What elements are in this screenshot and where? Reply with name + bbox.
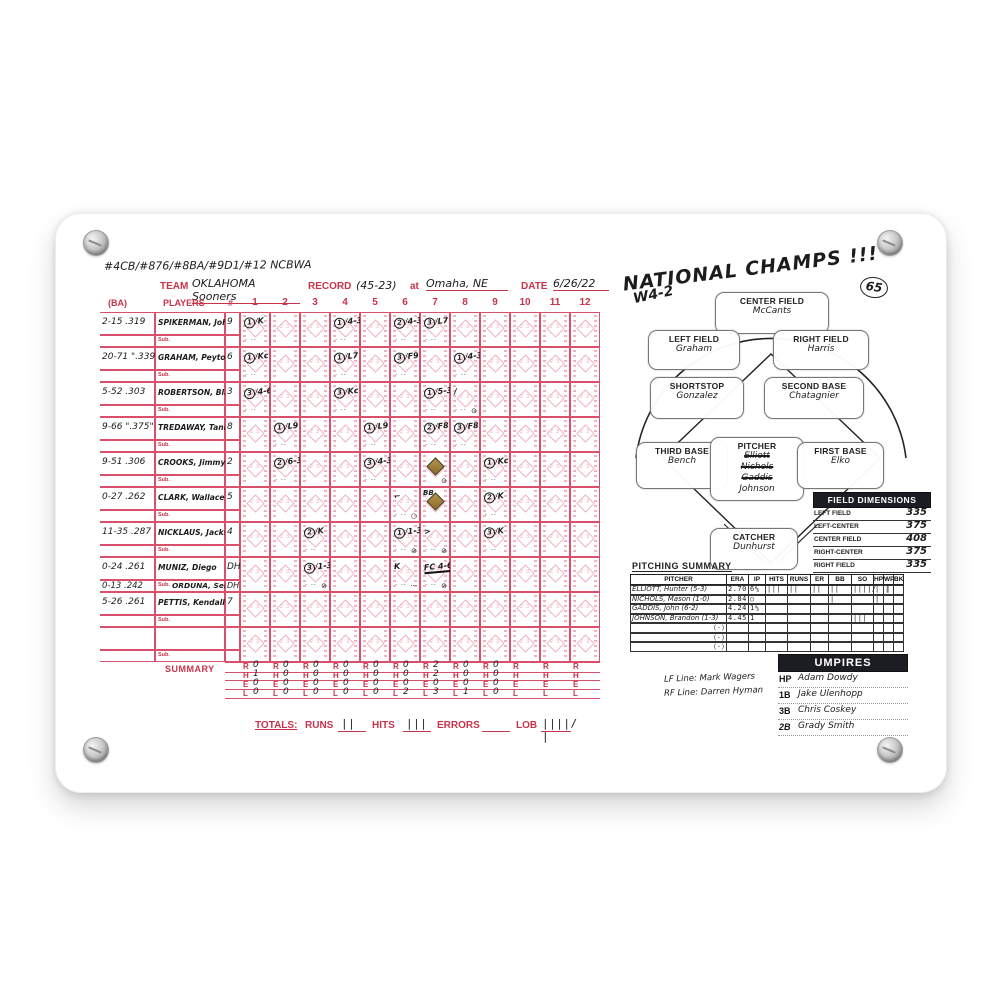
player-ba-cell: 5-52 .303 <box>100 382 155 405</box>
printed-positions: 2 3 <box>460 499 470 505</box>
pitch-dots-strip-right <box>534 630 537 659</box>
pitch-dots-strip-left <box>243 560 246 589</box>
player-ba-sub-cell <box>100 370 155 382</box>
scoring-cell: 2 33/Kc· ·· <box>330 382 360 417</box>
scoring-cell: 2 3 <box>300 382 330 417</box>
pitch-dots-strip-left <box>453 455 456 484</box>
pitch-dots-strip-right <box>564 490 567 519</box>
scoring-cell: 2 3 <box>390 592 420 627</box>
pitch-dots-strip-left <box>513 350 516 379</box>
inning-header: 7 <box>420 297 450 308</box>
scoring-cell: 2 3 <box>270 557 300 592</box>
location-value: Omaha, NE <box>426 277 508 291</box>
cell-extra-mark: ⊘ <box>441 547 447 555</box>
scoring-cell: 2 3 <box>570 557 600 592</box>
pitch-dots-strip-right <box>354 560 357 589</box>
pitch-dots-strip-right <box>354 595 357 624</box>
printed-positions: 2 3 <box>250 499 260 505</box>
field-dimensions-table: FIELD DIMENSIONSLEFT FIELD335LEFT-CENTER… <box>813 492 931 573</box>
play-text: FC 4-6 <box>424 561 453 572</box>
pitch-dots-strip-right <box>294 595 297 624</box>
pitch-dots-strip-left <box>453 630 456 659</box>
pitching-header-cell: ERA <box>726 574 749 585</box>
pitch-dots-strip-right <box>324 420 327 449</box>
summary-value: 0 <box>283 687 289 697</box>
pitch-dots-strip-right <box>504 630 507 659</box>
player-ba-sub-cell: 0-13 .242 <box>100 580 155 592</box>
summary-letter: R <box>423 662 429 671</box>
player-ba-cell: 2-15 .319 <box>100 312 155 335</box>
pitch-count-dots: · ·· <box>425 407 437 414</box>
scoring-cell: 2 3 <box>420 592 450 627</box>
pitching-header-cell: ER <box>810 574 829 585</box>
pitcher-name: NICHOLS, Mason (1-0) <box>632 595 710 603</box>
summary-letter: E <box>303 680 308 689</box>
summary-letter: L <box>273 689 278 698</box>
scoring-cell: 2 3 <box>330 417 360 452</box>
cell-play-line: 1/K <box>244 316 265 329</box>
scoring-cell: 2 3/· ··⊙ <box>450 382 480 417</box>
scoring-cell: 2 3 <box>540 382 570 417</box>
cell-annotation: 3/F8· ·· <box>451 418 479 451</box>
summary-value: 3 <box>433 687 439 697</box>
player-pos-cell: DH <box>225 557 240 580</box>
pitch-dots-strip-left <box>543 385 546 414</box>
errors-underline <box>482 720 510 732</box>
printed-positions: 2 3 <box>490 359 500 365</box>
cell-extra-mark: ⊘ <box>321 582 327 590</box>
pitching-cell-hits <box>765 633 788 643</box>
inning-header: 11 <box>540 297 570 308</box>
errors-label: ERRORS <box>437 720 480 731</box>
printed-positions: 2 3 <box>520 604 530 610</box>
pitch-dots-strip-left <box>543 490 546 519</box>
player-sub-cell: Sub. <box>155 405 225 417</box>
record-label: RECORD <box>308 281 351 292</box>
pitch-count-dots: · ·· <box>395 512 407 519</box>
umpire-row: HPAdam Dowdy <box>778 672 908 688</box>
printed-positions: 2 3 <box>250 569 260 575</box>
player-sub-cell: Sub. <box>155 370 225 382</box>
field-dimension-row: RIGHT FIELD335 <box>813 560 931 573</box>
summary-letter: L <box>513 689 518 698</box>
pitch-dots-strip-right <box>354 525 357 554</box>
pitch-dots-strip-right <box>504 420 507 449</box>
pitching-header-cell: HITS <box>765 574 788 585</box>
pitching-cell-so <box>851 595 874 605</box>
lob-tally: ||||/ | <box>542 717 578 743</box>
player-ba-cell: 9-51 .306 <box>100 452 155 475</box>
summary-letter: R <box>483 662 489 671</box>
pitching-value: | <box>830 595 835 603</box>
pitch-dots-strip-left <box>543 455 546 484</box>
scoring-cell: 2 3 <box>480 592 510 627</box>
scoring-cell: 2 3 <box>570 347 600 382</box>
cell-annotation: >· ··⊘ <box>421 523 449 556</box>
player-name-cell: MUNIZ, Diego <box>155 557 225 580</box>
summary-letter: H <box>393 671 399 680</box>
scoring-cell: 2 32/K· ·· <box>300 522 330 557</box>
player-pos-cell: 9 <box>225 312 240 335</box>
play-text: L7 <box>347 351 358 361</box>
player-sub-cell: Sub. <box>155 440 225 452</box>
pitching-value: | <box>875 595 880 603</box>
printed-positions: 2 3 <box>460 604 470 610</box>
summary-letter: R <box>513 662 519 671</box>
printed-positions: 2 3 <box>280 534 290 540</box>
pitch-dots-strip-right <box>324 630 327 659</box>
scoring-cell: 2 3 <box>360 522 390 557</box>
sub-label: Sub. <box>158 512 170 518</box>
pitch-dots-strip-right <box>354 630 357 659</box>
sub-ba-value: 0-13 .242 <box>102 581 143 591</box>
pitch-count-dots: · ·· <box>485 512 497 519</box>
summary-letter: E <box>423 680 428 689</box>
printed-positions: 2 3 <box>340 604 350 610</box>
record-value: (45-23) <box>356 279 397 292</box>
pitching-cell-hits: ||| <box>765 585 788 595</box>
printed-positions: 2 3 <box>370 394 380 400</box>
scoring-cell: 2 3 <box>480 312 510 347</box>
pitch-dots-strip-left <box>333 630 336 659</box>
pitching-cell-bk <box>893 585 904 595</box>
printed-positions: 2 3 <box>370 324 380 330</box>
printed-positions: 2 3 <box>460 569 470 575</box>
player-pos-cell: 8 <box>225 417 240 440</box>
player-name-cell: GRAHAM, Peyton <box>155 347 225 370</box>
pitch-dots-strip-left <box>513 455 516 484</box>
cell-extra-mark: ⊙ <box>471 407 477 415</box>
cell-play-line: 3/Kc <box>334 386 360 399</box>
cell-play-line: / <box>454 387 458 396</box>
player-ba-cell: 9-66 ".375" <box>100 417 155 440</box>
pitch-dots-strip-left <box>423 350 426 379</box>
scoring-cell: 2 3 <box>570 627 600 662</box>
pitch-dots-strip-right <box>594 490 597 519</box>
pitch-dots-strip-left <box>333 525 336 554</box>
summary-letter: R <box>333 662 339 671</box>
pitch-dots-strip-left <box>513 525 516 554</box>
scoring-cell: 2 3 <box>390 417 420 452</box>
player-name-cell: SPIKERMAN, John <box>155 312 225 335</box>
cell-annotation: 2/K· ·· <box>481 488 509 521</box>
sub-label: Sub. <box>158 407 170 413</box>
cell-play-line: K <box>394 562 401 572</box>
pitching-cell-er <box>810 614 829 624</box>
umpire-pos-label: 2B <box>779 722 791 732</box>
pitching-cell-bb <box>828 604 852 614</box>
cell-annotation: ⌐· ··○ <box>391 488 419 521</box>
scoring-cell: 2 31/L7· ·· <box>330 347 360 382</box>
pitch-dots-strip-left <box>363 525 366 554</box>
cell-play-line: 2/4-3 <box>394 316 423 329</box>
scoring-cell: 2 3 <box>570 522 600 557</box>
summary-letter: H <box>573 671 579 680</box>
cell-play-line: 1/4-3 <box>334 316 363 329</box>
position-label: SHORTSTOP <box>651 378 743 391</box>
scoring-cell: 2 3 <box>300 452 330 487</box>
scoring-cell: 2 31/L9· ·· <box>270 417 300 452</box>
pitch-dots-strip-right <box>534 420 537 449</box>
summary-letter: E <box>243 680 248 689</box>
printed-positions: 2 3 <box>340 429 350 435</box>
player-pos-value: 2 <box>227 457 233 467</box>
printed-positions: 2 3 <box>400 604 410 610</box>
summary-letter: E <box>273 680 278 689</box>
scoring-cell: 2 3 <box>570 487 600 522</box>
pitch-dots-strip-right <box>294 315 297 344</box>
scoring-cell: 2 31/L9· ·· <box>360 417 390 452</box>
pitching-cell-bb <box>828 614 852 624</box>
printed-positions: 2 3 <box>490 604 500 610</box>
cell-play-line: 1/L9 <box>364 421 389 434</box>
pitch-dots-strip-right <box>414 630 417 659</box>
cell-annotation: 2/6-3· ·· <box>271 453 299 486</box>
pitch-dots-strip-left <box>453 595 456 624</box>
dimension-label: RIGHT FIELD <box>814 562 855 569</box>
pitching-cell-er <box>810 633 829 643</box>
scoring-cell: 2 3 <box>510 417 540 452</box>
player-pos-sub-cell <box>225 475 240 487</box>
pitching-cell-era <box>726 633 749 643</box>
player-name-cell: NICKLAUS, Jackson <box>155 522 225 545</box>
sub-label: Sub. <box>158 442 170 448</box>
player-sub-cell: Sub. <box>155 475 225 487</box>
scoring-cell: 2 3 <box>450 592 480 627</box>
pitching-cell-runs <box>787 642 811 652</box>
printed-positions: 2 3 <box>340 464 350 470</box>
printed-positions: 2 3 <box>490 324 500 330</box>
cell-annotation: BB <box>421 488 449 521</box>
pitch-count-dots: · ·· <box>485 477 497 484</box>
position-box-rf: RIGHT FIELDHarris <box>773 330 869 370</box>
player-pos-sub-cell <box>225 335 240 347</box>
pitch-dots-strip-right <box>504 350 507 379</box>
cell-play-line: 3/K <box>484 526 505 539</box>
pitch-dots-strip-right <box>564 385 567 414</box>
player-ba-value: 11-35 .287 <box>102 527 151 537</box>
scoring-cell: 2 32/F8· ·· <box>420 417 450 452</box>
summary-letter: L <box>573 689 578 698</box>
pitch-dots-strip-right <box>444 350 447 379</box>
scoring-cell: 2 3 <box>300 347 330 382</box>
pitching-cell-so <box>851 623 874 633</box>
pitch-dots-strip-right <box>594 315 597 344</box>
scoring-cell: 2 3 <box>270 382 300 417</box>
player-ba-cell <box>100 627 155 650</box>
pitch-dots-strip-left <box>513 315 516 344</box>
pitch-dots-strip-right <box>474 630 477 659</box>
pitching-value: 4.45 <box>728 614 747 622</box>
player-ba-cell: 0-27 .262 <box>100 487 155 510</box>
scoring-cell: 2 31/4-3· ·· <box>330 312 360 347</box>
pitch-dots-strip-right <box>354 420 357 449</box>
player-name-cell: TREDAWAY, Tanner <box>155 417 225 440</box>
printed-positions: 2 3 <box>280 499 290 505</box>
cell-play-line: 2/F8 <box>424 421 450 434</box>
umpire-pos-label: HP <box>779 674 792 684</box>
scoring-cell: 2 3 <box>360 557 390 592</box>
pitching-value: 1⅓ <box>750 604 759 612</box>
inning-header: 5 <box>360 297 390 308</box>
printed-positions: 2 3 <box>340 534 350 540</box>
pitch-count-dots: · ·· <box>365 442 377 449</box>
player-ba-value: 9-51 .306 <box>102 457 145 467</box>
pitch-dots-strip-left <box>333 490 336 519</box>
umpire-name: Grady Smith <box>798 721 854 731</box>
printed-positions: 2 3 <box>370 569 380 575</box>
printed-positions: 2 3 <box>550 569 560 575</box>
cell-play-line: FC 4-6 <box>424 561 453 574</box>
scoring-cell: 2 3 <box>330 522 360 557</box>
pitching-cell-bk <box>893 623 904 633</box>
sub-label: Sub. <box>158 337 170 343</box>
printed-positions: 2 3 <box>400 464 410 470</box>
pitch-dots-strip-left <box>333 420 336 449</box>
pitching-header-cell: SO <box>851 574 874 585</box>
pitch-dots-strip-right <box>564 525 567 554</box>
scoring-cell: 2 3 <box>300 592 330 627</box>
play-text: L9 <box>287 421 298 431</box>
pitch-dots-strip-right <box>324 315 327 344</box>
pitch-dots-strip-right <box>594 385 597 414</box>
pitch-dots-strip-left <box>513 560 516 589</box>
pitch-dots-strip-left <box>363 350 366 379</box>
cell-play-line: ⌐ <box>394 492 401 502</box>
cell-play-line: 3/1-3 <box>304 561 333 574</box>
cell-play-text: BB <box>423 489 434 497</box>
cell-annotation: 3/Kc· ·· <box>331 383 359 416</box>
pitch-dots-strip-right <box>324 455 327 484</box>
player-ba-cell: 20-71 ".339" <box>100 347 155 370</box>
pitching-cell-bk <box>893 633 904 643</box>
pitch-dots-strip-left <box>303 455 306 484</box>
rankings-note: #4CB/#876/#8BA/#9D1/#12 NCBWA <box>104 258 312 273</box>
pitching-cell-name: ( - ) <box>630 642 727 652</box>
inning-header: 6 <box>390 297 420 308</box>
pitching-value: || <box>789 585 798 593</box>
sub-label: Sub. <box>158 652 170 658</box>
scoring-cell: 2 3 <box>270 627 300 662</box>
player-sub-cell: Sub. <box>155 650 225 662</box>
pitch-dots-strip-left <box>393 385 396 414</box>
scoring-cell: 2 3 <box>540 312 570 347</box>
position-player-name: Dunhurst <box>711 542 797 553</box>
inning-header: 9 <box>480 297 510 308</box>
player-sub-cell: Sub. <box>155 615 225 627</box>
summary-value: 1 <box>463 687 469 697</box>
printed-positions: 2 3 <box>520 359 530 365</box>
play-text: Kc <box>257 351 269 361</box>
printed-positions: 2 3 <box>580 639 590 645</box>
summary-letter: L <box>303 689 308 698</box>
pitching-cell-name: ( - ) <box>630 633 727 643</box>
pitching-cell-er <box>810 623 829 633</box>
dimension-value: 408 <box>906 533 927 544</box>
pitch-dots-strip-right <box>294 630 297 659</box>
pitch-dots-strip-right <box>534 525 537 554</box>
pitch-dots-strip-left <box>273 630 276 659</box>
pitch-count-dots: · ·· <box>245 407 257 414</box>
summary-letter: R <box>453 662 459 671</box>
pitch-dots-strip-left <box>573 490 576 519</box>
position-player-name: Elliott <box>711 451 803 462</box>
player-ba-cell: 11-35 .287 <box>100 522 155 545</box>
pitch-dots-strip-right <box>564 455 567 484</box>
summary-letter: L <box>423 689 428 698</box>
pitch-dots-strip-right <box>504 595 507 624</box>
pitch-dots-strip-right <box>534 490 537 519</box>
player-name-cell: CLARK, Wallace <box>155 487 225 510</box>
cell-play-line: 3/F8 <box>454 421 480 434</box>
summary-letter: L <box>333 689 338 698</box>
pitch-dots-strip-left <box>273 595 276 624</box>
pitch-dots-strip-left <box>333 560 336 589</box>
pitching-cell-runs <box>787 595 811 605</box>
cell-play-line: 1/4-3 <box>454 351 483 364</box>
pitching-cell-ip <box>748 633 766 643</box>
player-ba-sub-cell <box>100 615 155 627</box>
pitching-header-cell: BK <box>893 574 904 585</box>
player-name: CROOKS, Jimmy <box>158 458 225 467</box>
printed-positions: 2 3 <box>370 534 380 540</box>
player-pos-cell: 5 <box>225 487 240 510</box>
dimension-value: 335 <box>906 559 927 570</box>
player-pos-cell: 6 <box>225 347 240 370</box>
pitching-value: ||| <box>767 585 781 593</box>
cell-play-line: 3/4-3 <box>364 456 393 469</box>
scoring-cell: 2 3 <box>240 417 270 452</box>
pitch-dots-strip-right <box>294 385 297 414</box>
dimension-label: LEFT-CENTER <box>814 523 859 530</box>
scoring-cell: 2 33/K· ·· <box>480 522 510 557</box>
pitching-cell-ip <box>748 623 766 633</box>
pitch-dots-strip-right <box>564 630 567 659</box>
printed-positions: 2 3 <box>580 464 590 470</box>
cell-annotation: K· ····· <box>391 558 419 591</box>
printed-positions: 2 3 <box>580 499 590 505</box>
pitching-header-cell: BB <box>828 574 852 585</box>
printed-positions: 2 3 <box>310 394 320 400</box>
scoring-cell: 2 3 <box>360 382 390 417</box>
cell-annotation: 1/Kc· ·· <box>241 348 269 381</box>
summary-letter: R <box>573 662 579 671</box>
scoring-cell: 2 3 <box>510 452 540 487</box>
pitch-dots-strip-left <box>363 385 366 414</box>
pitch-dots-strip-right <box>264 420 267 449</box>
scoring-cell: 2 33/L7· ·· <box>420 312 450 347</box>
printed-positions: 2 3 <box>310 359 320 365</box>
pitch-dots-strip-left <box>573 350 576 379</box>
pitch-dots-strip-right <box>594 420 597 449</box>
scoring-cell: 2 3 <box>270 487 300 522</box>
cell-annotation: 1/L9· ·· <box>361 418 389 451</box>
player-name: PETTIS, Kendall <box>158 598 225 607</box>
pitching-cell-bk <box>893 642 904 652</box>
position-label: LEFT FIELD <box>649 331 739 344</box>
summary-letter: E <box>483 680 488 689</box>
printed-positions: 2 3 <box>280 569 290 575</box>
scoring-cell: 2 31/1-3· ··⊘ <box>390 522 420 557</box>
pitch-count-dots: · ·· <box>305 547 317 554</box>
pitch-dots-strip-left <box>453 490 456 519</box>
pitch-dots-strip-left <box>363 630 366 659</box>
scoring-cell: 2 3 <box>450 312 480 347</box>
pitch-dots-strip-right <box>384 315 387 344</box>
player-pos-sub-cell <box>225 615 240 627</box>
cell-annotation: 2/F8· ·· <box>421 418 449 451</box>
summary-letter: H <box>483 671 489 680</box>
